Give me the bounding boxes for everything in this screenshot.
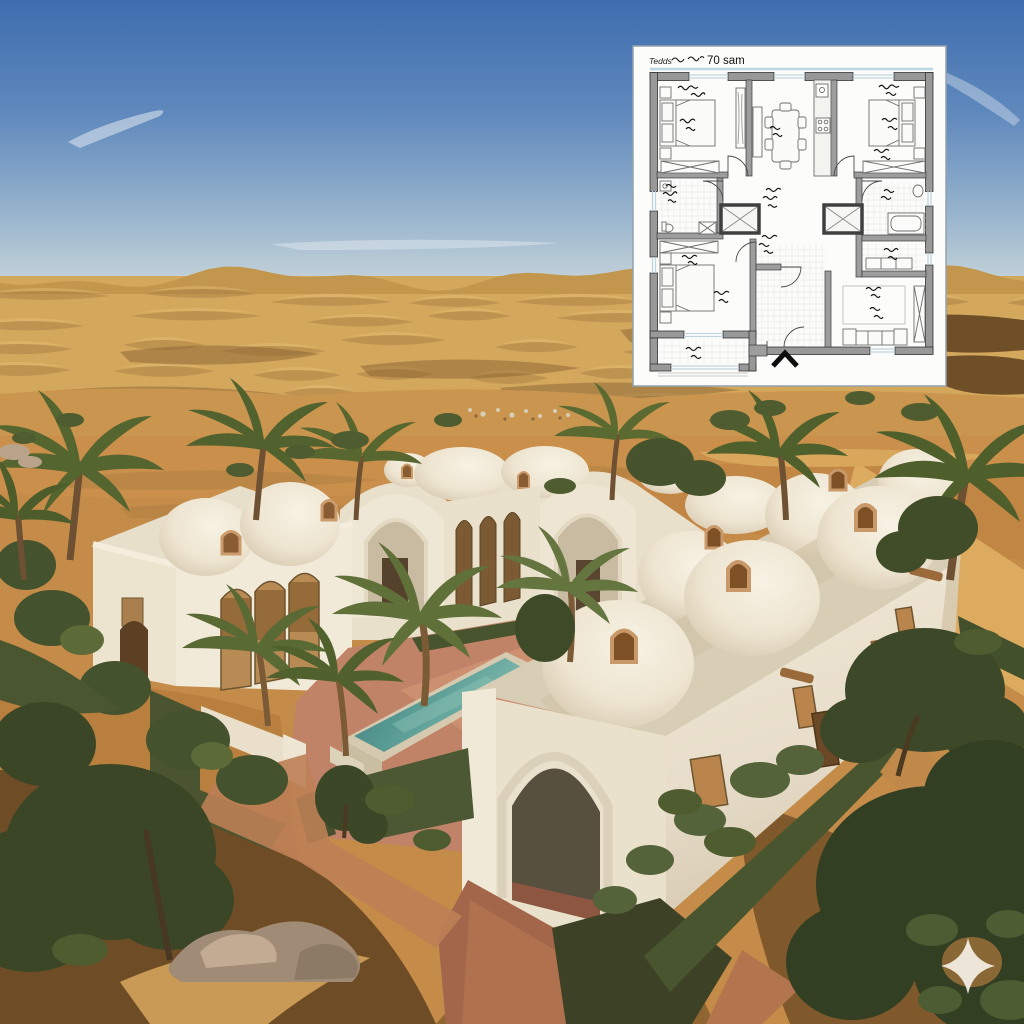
svg-text:70 sam: 70 sam [707, 55, 745, 67]
svg-text:Tedds: Tedds [649, 56, 673, 66]
